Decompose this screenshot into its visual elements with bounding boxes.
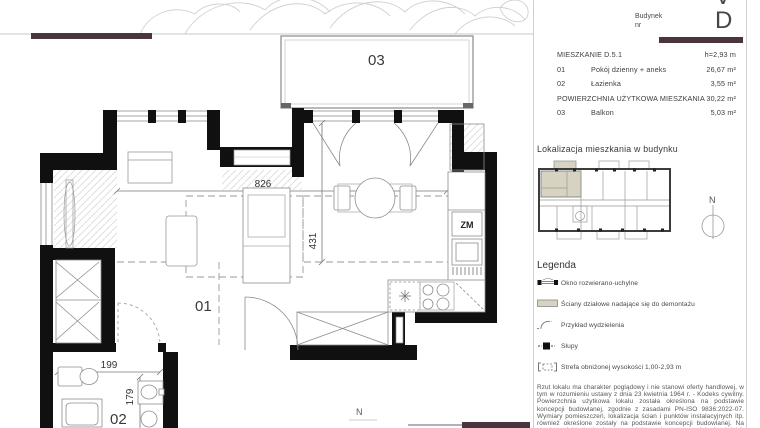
demountable-wall-icon	[537, 295, 561, 313]
partition-example-icon	[537, 317, 561, 335]
legend-label: Przykład wydzielenia	[561, 322, 624, 329]
table-row: 01 Pokój dzienny + aneks 26,67 m²	[557, 65, 736, 74]
legend-item: Przykład wydzielenia	[537, 317, 744, 335]
window-icon	[537, 274, 561, 292]
accent-bar-left	[31, 33, 152, 39]
legend-label: Strefa obniżonej wysokości 1,00-2,93 m	[561, 364, 681, 371]
building-value: D	[715, 9, 741, 33]
room-area: 5,03 m²	[711, 108, 736, 117]
legend-item: Okno rozwierano-uchylne	[537, 274, 744, 292]
living-room-door	[245, 297, 298, 350]
bathroom-door	[118, 303, 160, 345]
floor-plan-svg: 826 431 199 179	[0, 0, 533, 428]
legend-label: Ściany działowe nadające się do demontaż…	[561, 301, 695, 308]
location-body: N	[537, 160, 744, 249]
accent-bar-right	[659, 37, 743, 43]
balcony-door-band	[313, 110, 438, 123]
room-no: 01	[557, 65, 591, 74]
location-title: Lokalizacja mieszkania w budynku	[537, 144, 744, 154]
room-area: 3,55 m²	[711, 79, 736, 88]
entry-wardrobe	[297, 312, 388, 345]
room-label-living: 01	[195, 298, 212, 315]
apartment-title: MIESZKANIE D.5.1	[557, 50, 622, 59]
building-mini-plan	[537, 160, 677, 244]
highlighted-apartment	[541, 171, 581, 197]
legend-label: Słupy	[561, 343, 578, 350]
room-area: 26,67 m²	[706, 65, 736, 74]
reduced-height-icon	[537, 359, 561, 377]
compass: N	[693, 192, 733, 249]
room-label-bath: 02	[110, 411, 127, 428]
room-name: Balkon	[591, 108, 711, 117]
dining-table	[334, 178, 416, 218]
floor-plan-sheet: 826 431 199 179	[0, 0, 760, 428]
apartment-height: h=2,93 m	[705, 50, 736, 59]
total-area-label: POWIERZCHNIA UŻYTKOWA MIESZKANIA	[557, 94, 706, 103]
room-name: Łazienka	[591, 79, 711, 88]
hall-closet	[56, 260, 101, 343]
disclaimer-text: Rzut lokalu ma charakter poglądowy i nie…	[537, 384, 744, 428]
room-name: Pokój dzienny + aneks	[591, 65, 706, 74]
room-no: 02	[557, 79, 591, 88]
total-area-value: 30,22 m²	[706, 94, 736, 103]
apartment-table: MIESZKANIE D.5.1 h=2,93 m 01 Pokój dzien…	[537, 50, 744, 117]
table-row: 03 Balkon 5,03 m²	[557, 108, 736, 117]
table-row: 02 Łazienka 3,55 m²	[557, 79, 736, 88]
dim-living-depth: 431	[308, 232, 319, 249]
plan-compass-label: N	[356, 407, 363, 417]
compass-label: N	[709, 195, 716, 205]
floor-label: nr	[635, 0, 693, 2]
legend-item: Słupy	[537, 338, 744, 356]
dresser	[128, 152, 172, 183]
legend-item: Ściany działowe nadające się do demontaż…	[537, 295, 744, 313]
window-band-top-west	[117, 110, 207, 123]
dim-bath-depth: 179	[125, 388, 136, 405]
bed	[243, 188, 290, 283]
building-header-row: Budynek nr D	[537, 9, 744, 33]
info-sidebar: nr V Budynek nr D MIESZKANIE D.5.1 h=2,9…	[534, 0, 746, 428]
room-label-balcony: 03	[368, 52, 385, 69]
tree-sketch-decor	[140, 0, 528, 34]
building-label: Budynek nr	[635, 12, 693, 30]
dishwasher-label: ZM	[461, 220, 474, 230]
floor-plan-area: 826 431 199 179	[0, 0, 533, 428]
total-area-row: POWIERZCHNIA UŻYTKOWA MIESZKANIA 30,22 m…	[557, 94, 736, 103]
legend-title: Legenda	[537, 260, 744, 271]
dim-bath-width: 199	[101, 360, 118, 371]
scale-bar-accent	[462, 422, 530, 428]
sidebar-divider-right	[746, 0, 747, 428]
balcony-outline	[281, 36, 473, 108]
room-no: 03	[557, 108, 591, 117]
armchair	[166, 216, 197, 266]
columns-icon	[537, 338, 561, 356]
wall-niche	[234, 150, 290, 165]
legend-label: Okno rozwierano-uchylne	[561, 280, 638, 287]
entry-door	[396, 317, 403, 343]
balcony-door-swings	[313, 123, 438, 166]
legend-item: Strefa obniżonej wysokości 1,00-2,93 m	[537, 359, 744, 377]
floor-header-row: nr V	[537, 0, 744, 9]
